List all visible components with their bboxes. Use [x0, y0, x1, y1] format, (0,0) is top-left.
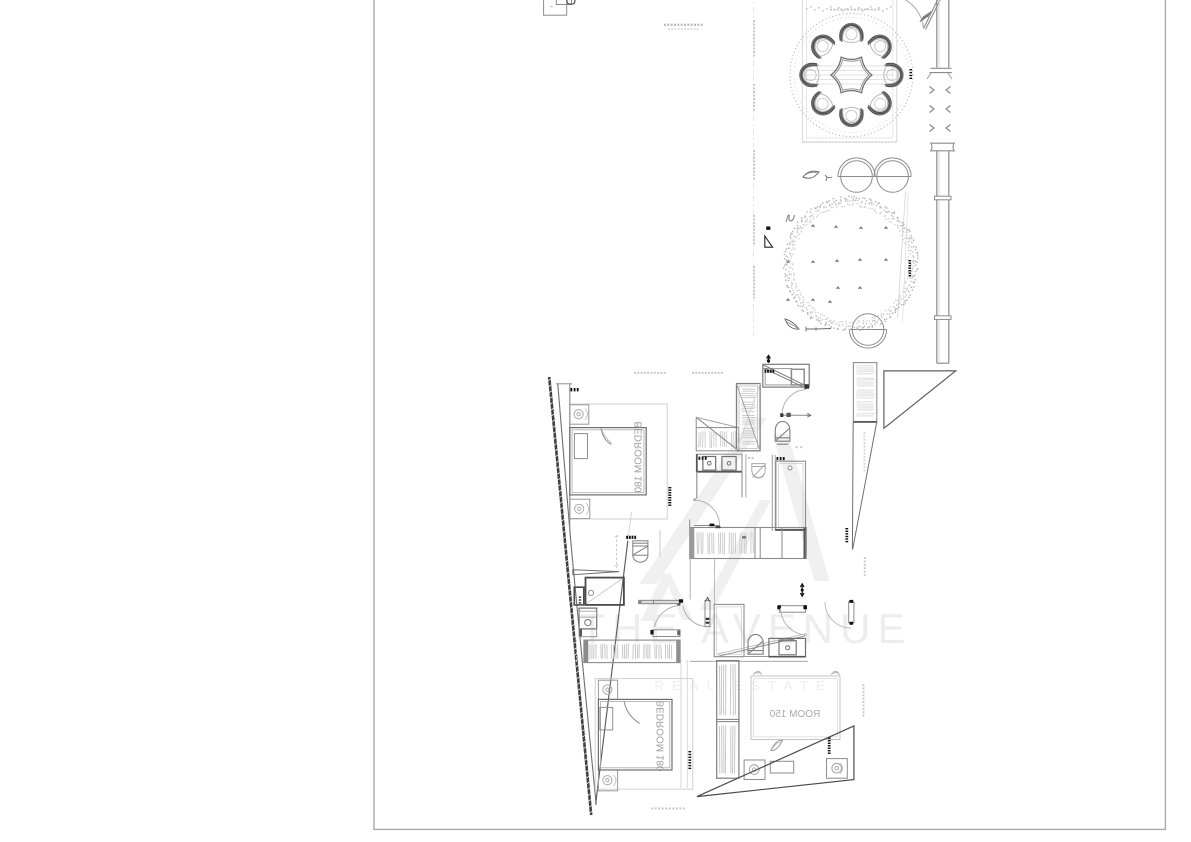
svg-text:BEDROOM 180: BEDROOM 180 — [634, 421, 645, 493]
svg-text:ROOM 150: ROOM 150 — [769, 709, 820, 720]
svg-text:BEDROOM 180: BEDROOM 180 — [656, 700, 667, 772]
svg-text:THE AVENUE: THE AVENUE — [580, 605, 913, 652]
